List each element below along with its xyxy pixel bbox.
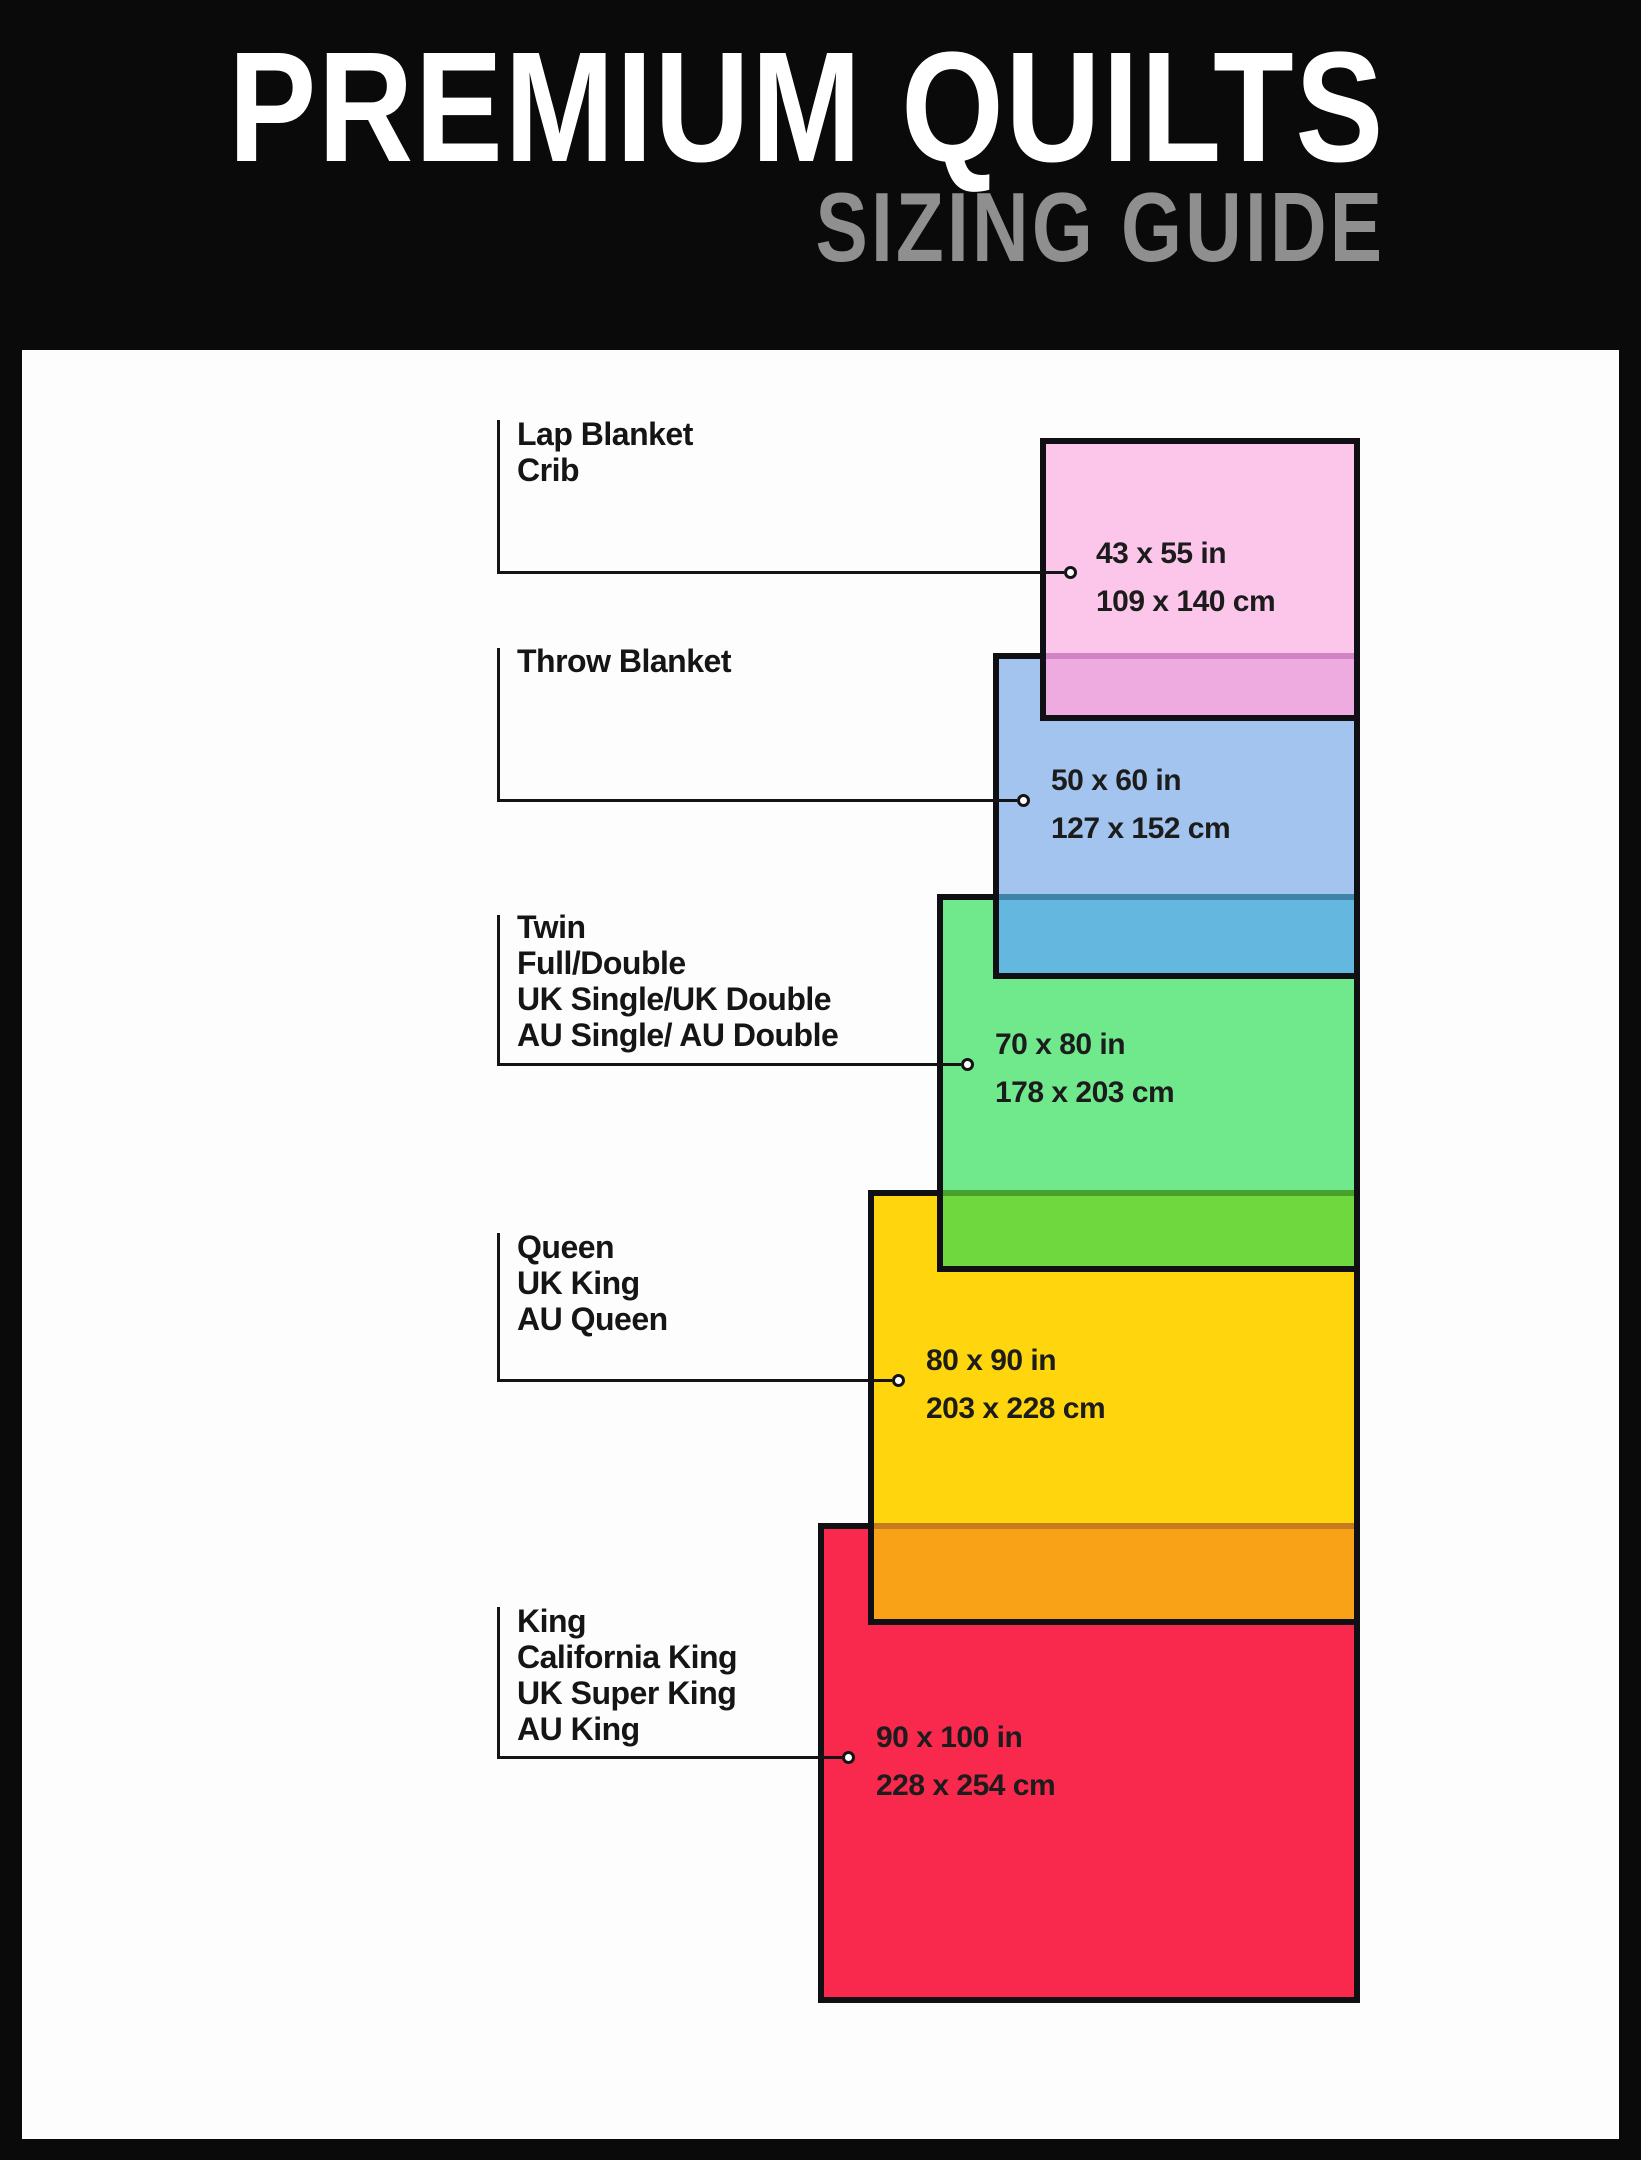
connector-dot-queen (892, 1374, 905, 1387)
connector-dot-throw (1017, 794, 1030, 807)
connector-vline-twin (497, 915, 500, 1063)
dim-cm-throw: 127 x 152 cm (1051, 813, 1230, 845)
dim-cm-lap: 109 x 140 cm (1096, 586, 1275, 618)
connector-vline-queen (497, 1233, 500, 1379)
label-line: Full/Double (517, 945, 838, 981)
connector-vline-throw (497, 648, 500, 799)
connector-dot-twin (961, 1058, 974, 1071)
connector-hline-queen (497, 1379, 892, 1382)
label-line: UK Single/UK Double (517, 981, 838, 1017)
connector-dot-king (842, 1751, 855, 1764)
label-line: AU King (517, 1711, 737, 1747)
label-line: UK King (517, 1265, 668, 1301)
label-line: King (517, 1603, 737, 1639)
page-subtitle: SIZING GUIDE (815, 176, 1385, 279)
label-king: King California King UK Super King AU Ki… (517, 1603, 737, 1747)
connector-hline-throw (497, 799, 1017, 802)
dim-inches-throw: 50 x 60 in (1051, 765, 1181, 797)
label-line: AU Single/ AU Double (517, 1017, 838, 1053)
dim-cm-queen: 203 x 228 cm (926, 1393, 1105, 1425)
label-line: California King (517, 1639, 737, 1675)
overlap-lap-throw (1046, 653, 1354, 715)
label-line: UK Super King (517, 1675, 737, 1711)
label-throw-blanket: Throw Blanket (517, 643, 731, 679)
dim-inches-twin: 70 x 80 in (995, 1029, 1125, 1061)
dim-inches-king: 90 x 100 in (876, 1722, 1022, 1754)
label-queen: Queen UK King AU Queen (517, 1229, 668, 1337)
dim-cm-king: 228 x 254 cm (876, 1770, 1055, 1802)
connector-hline-king (497, 1756, 842, 1759)
label-line: Throw Blanket (517, 643, 731, 679)
label-line: AU Queen (517, 1301, 668, 1337)
label-line: Queen (517, 1229, 668, 1265)
dim-cm-twin: 178 x 203 cm (995, 1077, 1174, 1109)
label-twin: Twin Full/Double UK Single/UK Double AU … (517, 909, 838, 1053)
sizing-guide-infographic: PREMIUM QUILTS SIZING GUIDE Lap Blanket … (0, 0, 1641, 2160)
overlap-twin-queen (943, 1190, 1354, 1266)
dim-inches-lap: 43 x 55 in (1096, 538, 1226, 570)
label-line: Lap Blanket (517, 416, 693, 452)
connector-dot-lap (1064, 566, 1077, 579)
label-line: Twin (517, 909, 838, 945)
page-title: PREMIUM QUILTS (228, 26, 1385, 191)
overlap-throw-twin (999, 894, 1354, 973)
label-line: Crib (517, 452, 693, 488)
connector-hline-twin (497, 1063, 961, 1066)
connector-vline-lap (497, 420, 500, 571)
overlap-queen-king (874, 1523, 1354, 1619)
connector-hline-lap (497, 571, 1064, 574)
connector-vline-king (497, 1607, 500, 1756)
dim-inches-queen: 80 x 90 in (926, 1345, 1056, 1377)
label-lap-blanket: Lap Blanket Crib (517, 416, 693, 488)
